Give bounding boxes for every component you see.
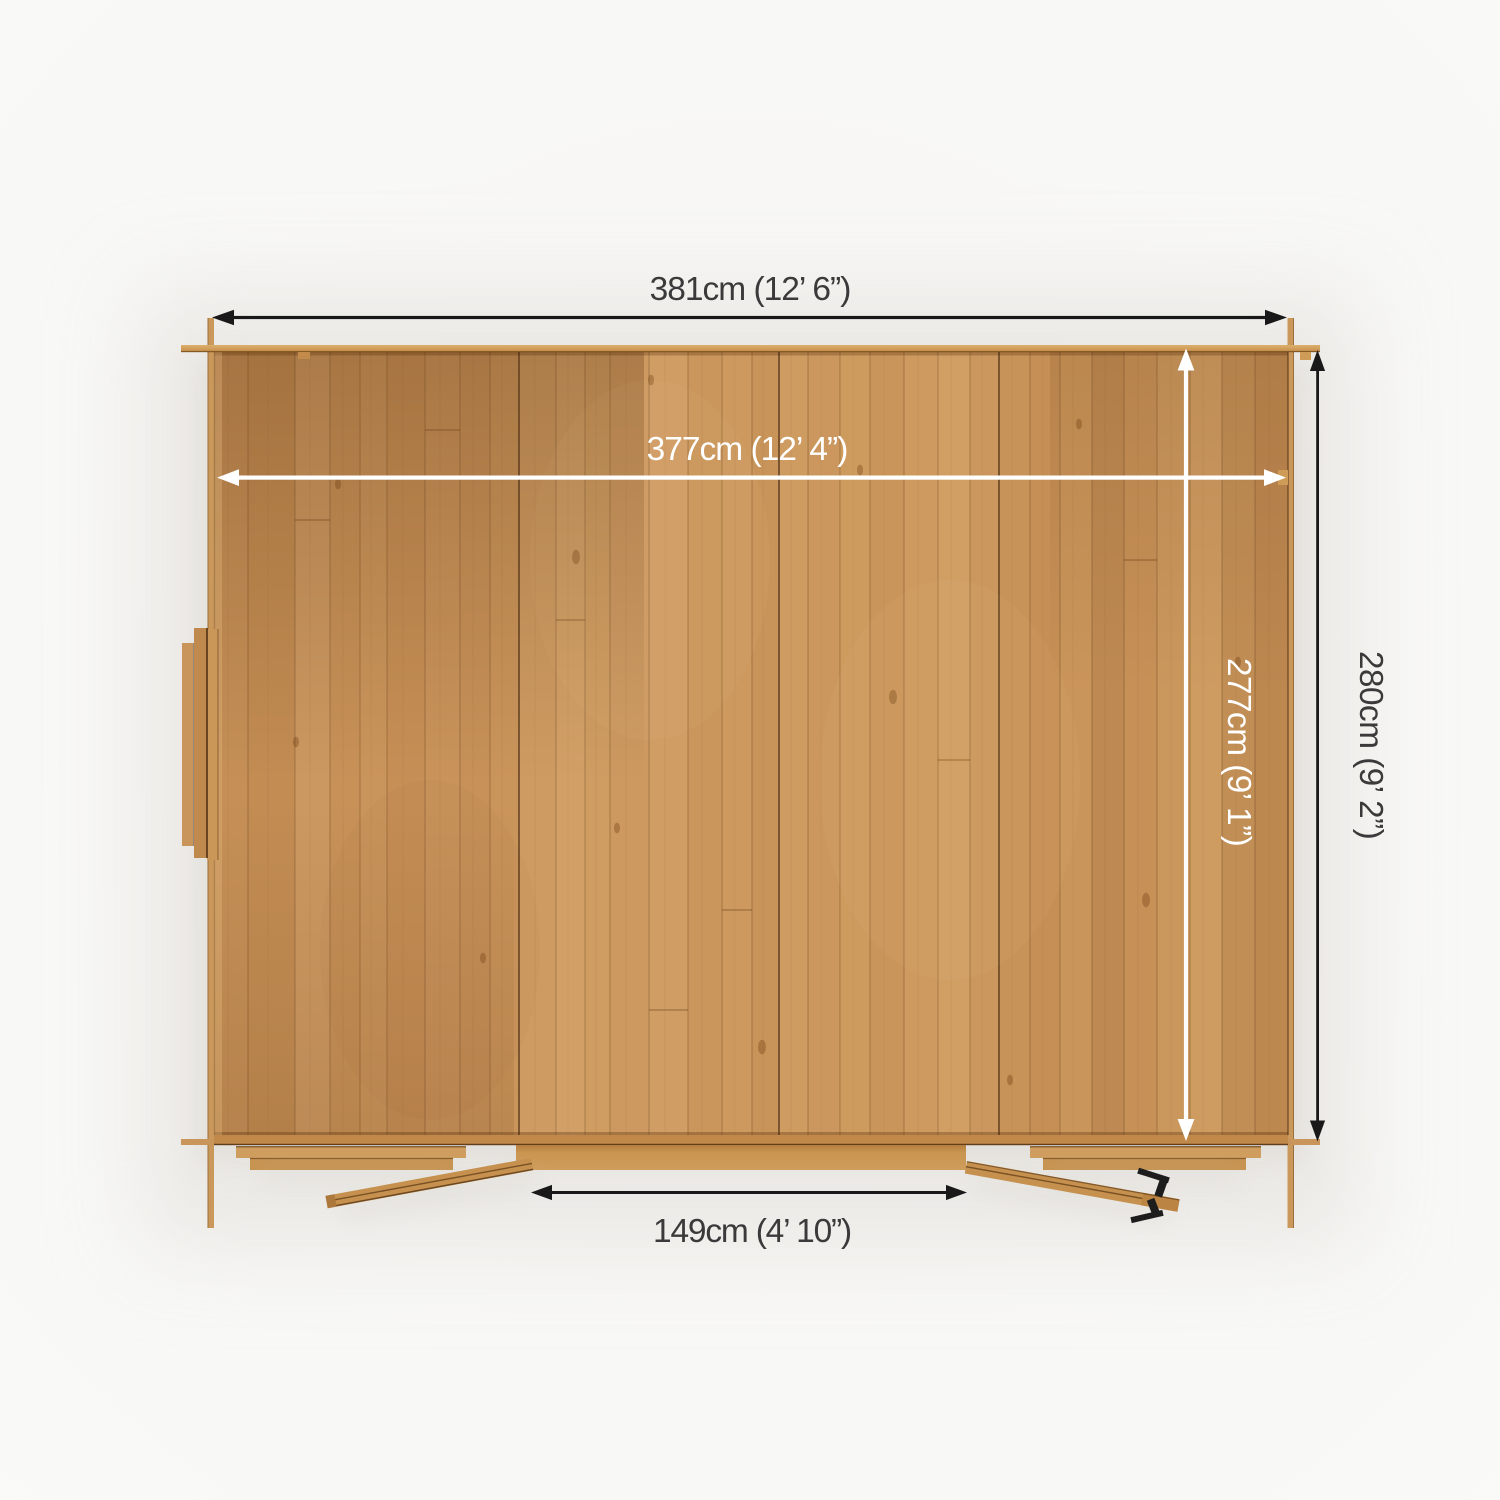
- svg-text:381cm (12’ 6”): 381cm (12’ 6”): [650, 271, 851, 308]
- svg-text:280cm (9’ 2”): 280cm (9’ 2”): [1352, 651, 1389, 839]
- svg-text:277cm (9’ 1”): 277cm (9’ 1”): [1220, 658, 1257, 846]
- svg-text:149cm (4’ 10”): 149cm (4’ 10”): [653, 1213, 851, 1250]
- svg-text:377cm (12’ 4”): 377cm (12’ 4”): [647, 431, 848, 468]
